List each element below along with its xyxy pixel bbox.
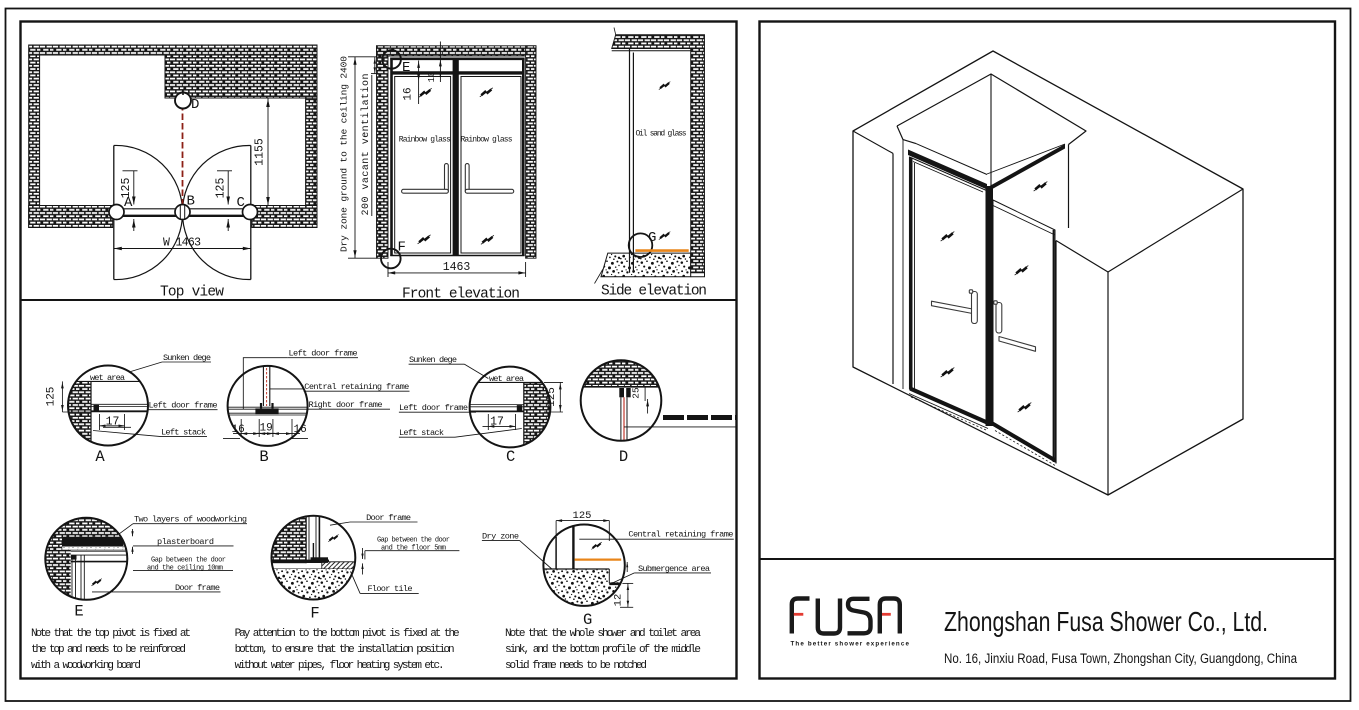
svg-text:wet area: wet area <box>90 373 125 383</box>
svg-text:Side elevation: Side elevation <box>601 284 707 300</box>
svg-text:12: 12 <box>613 594 625 607</box>
svg-text:Two layers of woodworking: Two layers of woodworking <box>134 515 247 525</box>
svg-text:16: 16 <box>403 87 415 100</box>
svg-text:Left door frame: Left door frame <box>149 401 218 411</box>
svg-text:Note that the whole shower and: Note that the whole shower and toilet ar… <box>505 628 701 640</box>
svg-text:Note that the top pivot is fix: Note that the top pivot is fixed at <box>31 628 191 640</box>
svg-text:W 1463: W 1463 <box>163 237 201 250</box>
svg-text:Gap between the door: Gap between the door <box>151 557 226 565</box>
svg-text:Oil sand glass: Oil sand glass <box>636 130 687 139</box>
svg-text:125: 125 <box>46 387 58 407</box>
svg-text:Pay attention to the bottom pi: Pay attention to the bottom pivot is fix… <box>235 628 460 640</box>
svg-text:Left door frame: Left door frame <box>289 349 358 359</box>
svg-text:Zhongshan Fusa Shower Co., Ltd: Zhongshan Fusa Shower Co., Ltd. <box>944 606 1268 637</box>
svg-text:and the floor 5mm: and the floor 5mm <box>381 545 446 553</box>
svg-text:10: 10 <box>427 72 437 83</box>
svg-text:D: D <box>619 448 628 466</box>
svg-text:the top and needs to be reinfo: the top and needs to be reinforced <box>31 644 186 656</box>
svg-text:D: D <box>191 97 199 113</box>
svg-text:125: 125 <box>120 178 133 199</box>
svg-text:No. 16, Jinxiu Road, Fusa Town: No. 16, Jinxiu Road, Fusa Town, Zhongsha… <box>944 651 1297 666</box>
svg-text:16: 16 <box>232 424 245 436</box>
svg-text:Rainbow glass: Rainbow glass <box>399 136 451 145</box>
svg-text:Central retaining frame: Central retaining frame <box>628 530 733 540</box>
svg-text:Sunken dege: Sunken dege <box>163 353 211 363</box>
svg-text:Sunken dege: Sunken dege <box>409 355 457 365</box>
svg-text:bottom, to ensure that the ins: bottom, to ensure that the installation … <box>235 644 455 656</box>
svg-text:Rainbow glass: Rainbow glass <box>461 136 513 145</box>
svg-text:B: B <box>187 194 195 210</box>
svg-text:Central retaining frame: Central retaining frame <box>304 382 409 392</box>
svg-text:1155: 1155 <box>254 138 267 166</box>
svg-text:Submergence area: Submergence area <box>638 564 710 574</box>
svg-text:F: F <box>310 605 319 623</box>
svg-text:The better shower experience: The better shower experience <box>791 641 911 648</box>
svg-text:G: G <box>648 230 656 246</box>
svg-text:16: 16 <box>294 424 307 436</box>
svg-text:25: 25 <box>631 387 642 399</box>
svg-text:F: F <box>398 240 406 256</box>
svg-text:Left stack: Left stack <box>161 428 206 438</box>
svg-text:Top view: Top view <box>160 285 224 301</box>
svg-text:G: G <box>583 611 592 629</box>
svg-text:Gap between the door: Gap between the door <box>377 537 450 545</box>
svg-text:Dry zone: Dry zone <box>482 531 519 541</box>
svg-text:wet area: wet area <box>489 374 524 384</box>
svg-text:solid frame needs to be notche: solid frame needs to be notched <box>505 660 647 672</box>
svg-text:with a woodworking board: with a woodworking board <box>31 660 141 672</box>
svg-text:19: 19 <box>260 423 273 435</box>
svg-text:Front elevation: Front elevation <box>402 287 520 303</box>
svg-text:Door frame: Door frame <box>175 583 220 593</box>
svg-text:C: C <box>506 448 515 466</box>
svg-text:Left door frame: Left door frame <box>399 403 468 413</box>
svg-text:without water pipes, floor hea: without water pipes, floor heating syste… <box>235 660 445 672</box>
svg-text:125: 125 <box>215 178 228 199</box>
svg-text:C: C <box>237 195 245 211</box>
svg-text:125: 125 <box>573 510 592 522</box>
svg-text:B: B <box>259 448 268 466</box>
svg-text:Right door frame: Right door frame <box>309 400 383 410</box>
svg-text:plasterboard: plasterboard <box>157 537 214 547</box>
svg-text:Door frame: Door frame <box>366 513 411 523</box>
svg-text:200 vacant ventilation: 200 vacant ventilation <box>360 74 372 216</box>
svg-text:Floor tile: Floor tile <box>368 584 413 594</box>
svg-text:E: E <box>74 603 83 621</box>
svg-text:17: 17 <box>490 415 504 428</box>
svg-text:sink, and the bottom profile o: sink, and the bottom profile of the midd… <box>505 644 701 656</box>
svg-text:A: A <box>95 448 105 466</box>
svg-text:E: E <box>402 60 410 76</box>
svg-text:1463: 1463 <box>443 261 471 274</box>
svg-text:and the ceiling 10mm: and the ceiling 10mm <box>147 565 223 573</box>
svg-text:Left stack: Left stack <box>399 428 444 438</box>
svg-text:17: 17 <box>106 415 120 428</box>
svg-text:125: 125 <box>546 387 558 407</box>
svg-text:Dry zone ground to the ceiling: Dry zone ground to the ceiling 2400 <box>339 56 350 252</box>
